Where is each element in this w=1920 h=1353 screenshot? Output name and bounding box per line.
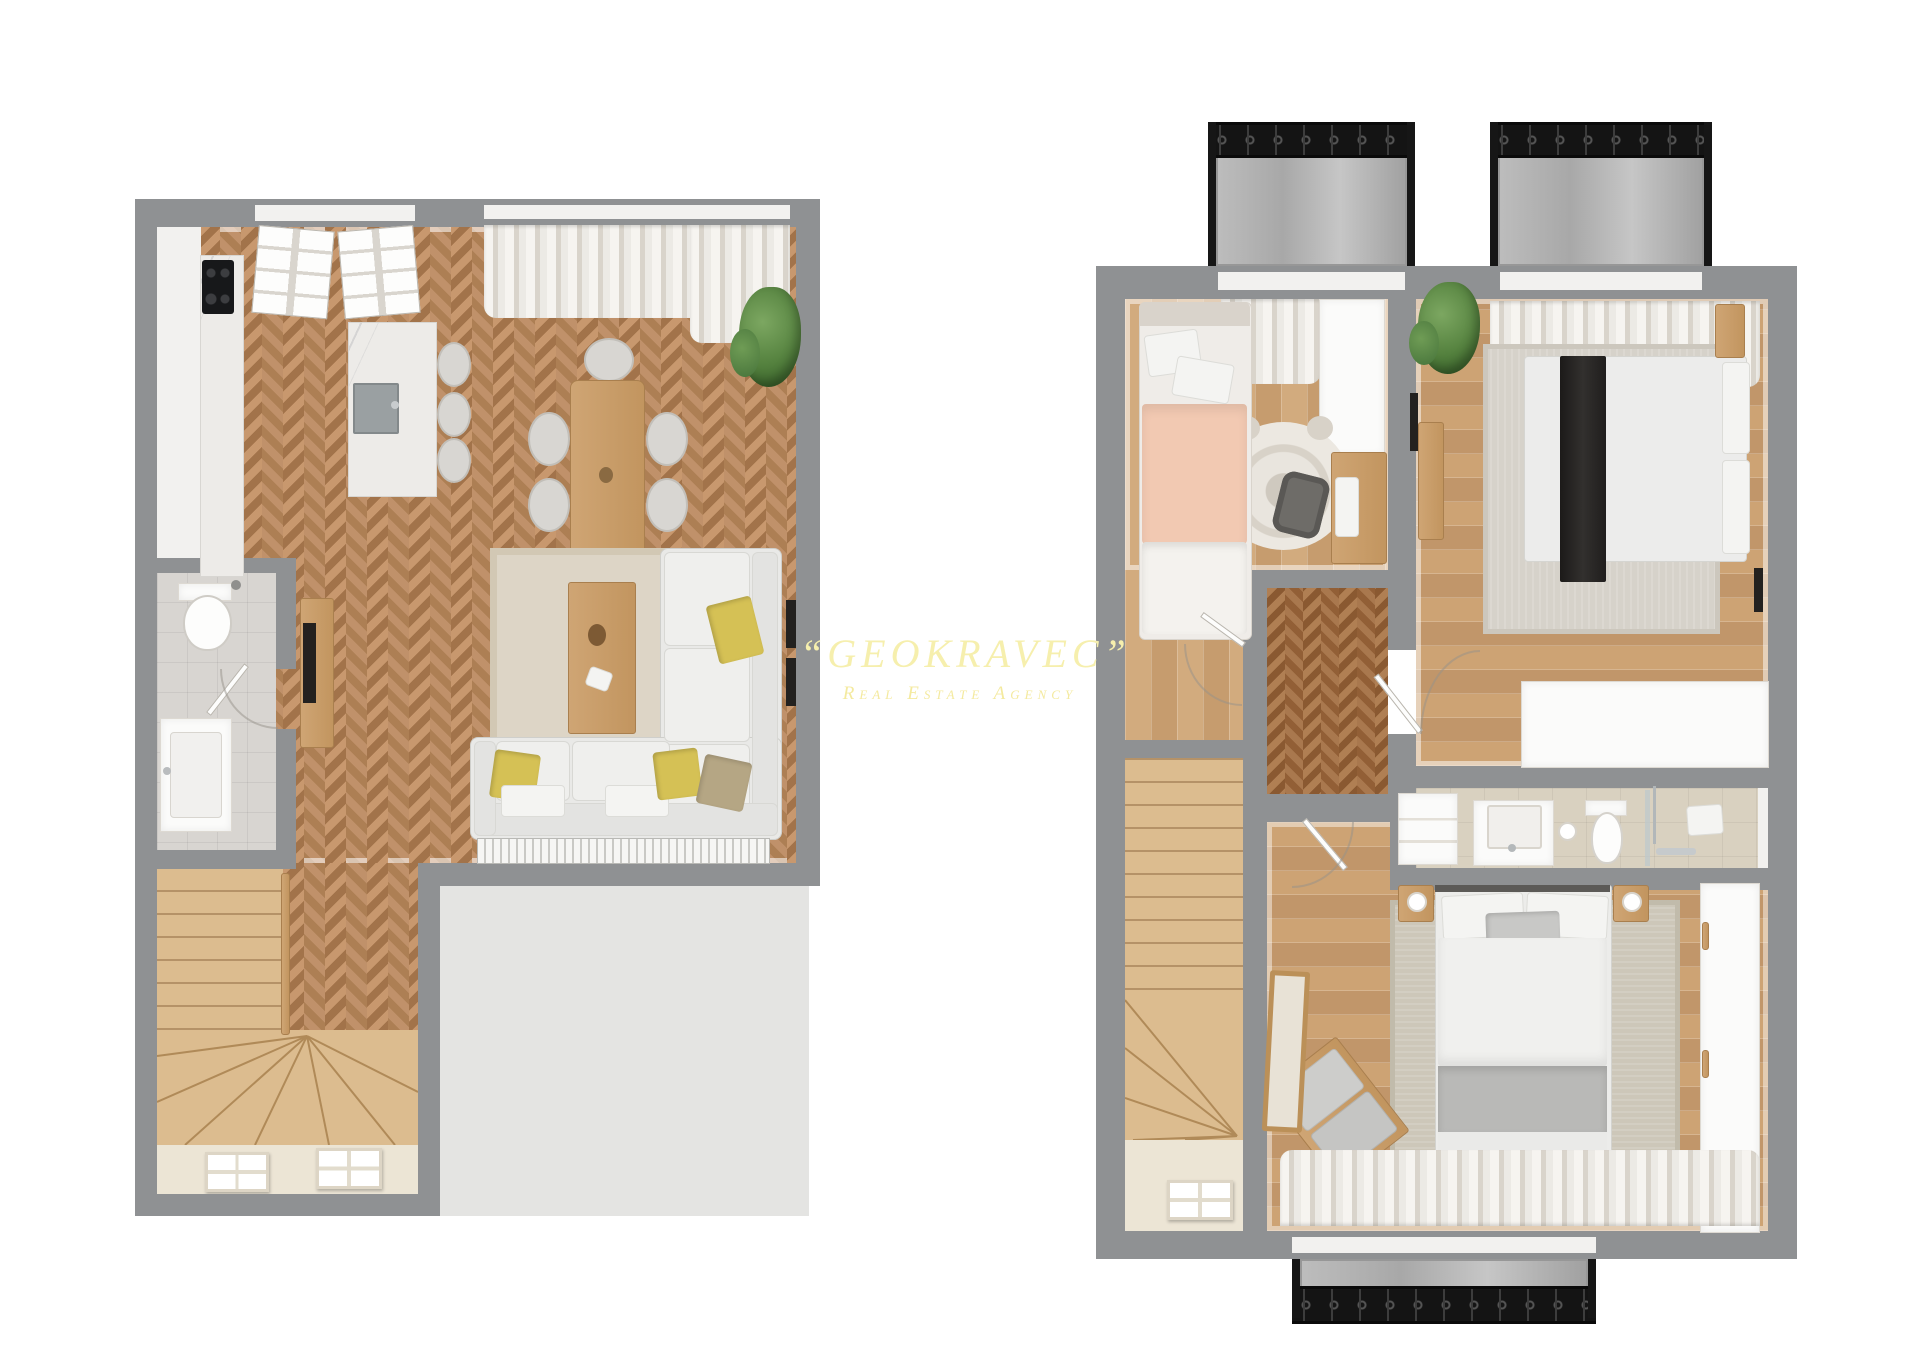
bed-throw — [1560, 356, 1606, 582]
radiator — [477, 838, 770, 864]
curtains — [1280, 1150, 1760, 1226]
coffee-table — [568, 582, 636, 734]
nightstand — [1715, 304, 1745, 358]
dining-chair — [646, 412, 688, 466]
wall — [1249, 794, 1388, 822]
stair-handrail — [281, 873, 290, 1035]
bed-headboard — [1435, 885, 1610, 892]
master-bed — [1524, 356, 1747, 562]
table-lamp — [1622, 892, 1642, 912]
wall — [418, 863, 440, 1216]
yellow-pillow — [652, 747, 703, 800]
wall — [1768, 266, 1797, 1259]
white-pillow — [501, 785, 565, 817]
tv-screen — [1410, 393, 1418, 451]
wall — [418, 863, 810, 886]
bathroom-wall — [276, 558, 296, 669]
staircase-winders — [1125, 990, 1243, 1140]
sink-faucet — [163, 767, 171, 775]
balcony-railing-side — [1490, 122, 1498, 266]
floor-plan-image: “GEOKRAVEC” Real Estate Agency — [0, 0, 1920, 1353]
wall — [1096, 266, 1125, 1259]
terrace-slab — [440, 886, 809, 1216]
bath-mat — [1686, 804, 1724, 836]
wardrobe-handle — [1702, 1050, 1709, 1078]
tv-sideboard — [1418, 422, 1444, 540]
pillow — [1722, 362, 1750, 454]
wall — [135, 1194, 435, 1216]
balcony-railing — [1490, 122, 1712, 158]
balcony-railing-side — [1588, 1259, 1596, 1318]
dining-chair — [528, 478, 570, 532]
wall-frame — [786, 600, 796, 648]
balcony-railing-side — [1208, 122, 1216, 266]
toilet-paper-holder — [1558, 822, 1577, 841]
leaning-mirror — [1262, 970, 1310, 1133]
sink-basin — [1487, 805, 1542, 849]
bathroom-wall — [276, 729, 296, 869]
french-door-leaf — [337, 225, 420, 319]
toilet — [1591, 812, 1623, 864]
bar-stool — [437, 342, 471, 387]
wall-frame — [786, 658, 796, 706]
bed-duvet — [1438, 938, 1607, 1066]
bathroom-wall — [157, 850, 296, 869]
bar-stool — [437, 438, 471, 483]
dining-chair — [584, 338, 634, 382]
floor-vent — [316, 1148, 382, 1189]
table-lamp — [1407, 892, 1427, 912]
pillow — [1722, 460, 1750, 554]
shower-drain — [1656, 848, 1696, 855]
french-door-leaf — [251, 225, 334, 319]
balcony-railing — [1208, 122, 1415, 158]
kids-bed-headboard — [1139, 302, 1250, 326]
pendant-light — [231, 580, 241, 590]
watermark-subtitle: Real Estate Agency — [800, 683, 1120, 705]
bar-stool — [437, 392, 471, 437]
tv-screen — [303, 623, 316, 703]
balcony-floor — [1498, 150, 1704, 266]
window — [484, 205, 790, 219]
sink-faucet — [1508, 844, 1516, 852]
first-floor-plan — [1096, 122, 1797, 1318]
corridor-floor — [1267, 588, 1388, 794]
wall — [796, 199, 820, 886]
bathroom-shelf-unit — [1398, 793, 1458, 865]
wall-frame — [1754, 568, 1763, 612]
staircase-winders — [157, 1030, 418, 1145]
window — [1218, 272, 1405, 290]
dining-chair — [646, 478, 688, 532]
watermark: “GEOKRAVEC” Real Estate Agency — [800, 630, 1120, 705]
balcony-railing — [1292, 1286, 1596, 1324]
sofa-cushion — [664, 648, 750, 742]
ground-floor-plan — [135, 199, 820, 1216]
shower-pipe — [1653, 786, 1656, 844]
balcony-railing-side — [1407, 122, 1415, 266]
desk-accessory — [1335, 477, 1359, 537]
wall — [135, 199, 157, 1216]
table-decor — [588, 624, 606, 646]
dining-chair — [528, 412, 570, 466]
bathroom-wall — [1388, 766, 1768, 788]
window — [1500, 272, 1702, 290]
shower-glass — [1645, 790, 1650, 866]
floor-vent — [205, 1152, 269, 1192]
wardrobe-handle — [1702, 922, 1709, 950]
island-faucet — [391, 401, 399, 409]
sink-basin — [170, 732, 222, 818]
staircase-straight-run — [1125, 758, 1243, 990]
master-built-in-closet — [1521, 681, 1769, 768]
watermark-title: “GEOKRAVEC” — [800, 630, 1120, 677]
khaki-pillow — [695, 754, 752, 813]
kids-bed-duvet — [1142, 542, 1247, 634]
sofa-backrest — [752, 552, 778, 836]
window — [1292, 1237, 1596, 1253]
table-centerpiece — [599, 467, 613, 483]
floor-vent — [1167, 1180, 1233, 1220]
kids-bed-blanket — [1142, 404, 1247, 544]
staircase-straight-run — [157, 869, 283, 1030]
balcony-floor — [1216, 150, 1407, 266]
entrance-opening — [255, 205, 415, 221]
wall — [1243, 570, 1267, 1231]
bed-blanket — [1438, 1066, 1607, 1132]
balcony-railing-side — [1292, 1259, 1300, 1318]
balcony-railing-side — [1704, 122, 1712, 266]
cooktop — [202, 260, 234, 314]
bathroom-wall-face — [1758, 788, 1768, 868]
toilet — [183, 595, 232, 651]
